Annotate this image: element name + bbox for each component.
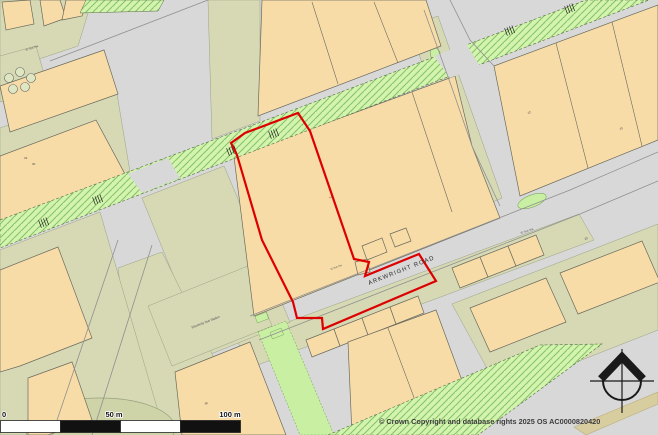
site-plan-map: ARKWRIGHT ROAD El Sub Sta El Sub Sta El … — [0, 0, 658, 435]
scale-tick-100: 100 m — [219, 410, 241, 419]
building-number: 32 — [24, 156, 28, 160]
scale-tick-0: 0 — [2, 410, 6, 419]
building-number: 30 — [32, 162, 36, 166]
scale-tick-50: 50 m — [105, 410, 122, 419]
map-canvas: ARKWRIGHT ROAD El Sub Sta El Sub Sta El … — [0, 0, 658, 435]
copyright-notice: © Crown Copyright and database rights 20… — [379, 417, 600, 426]
